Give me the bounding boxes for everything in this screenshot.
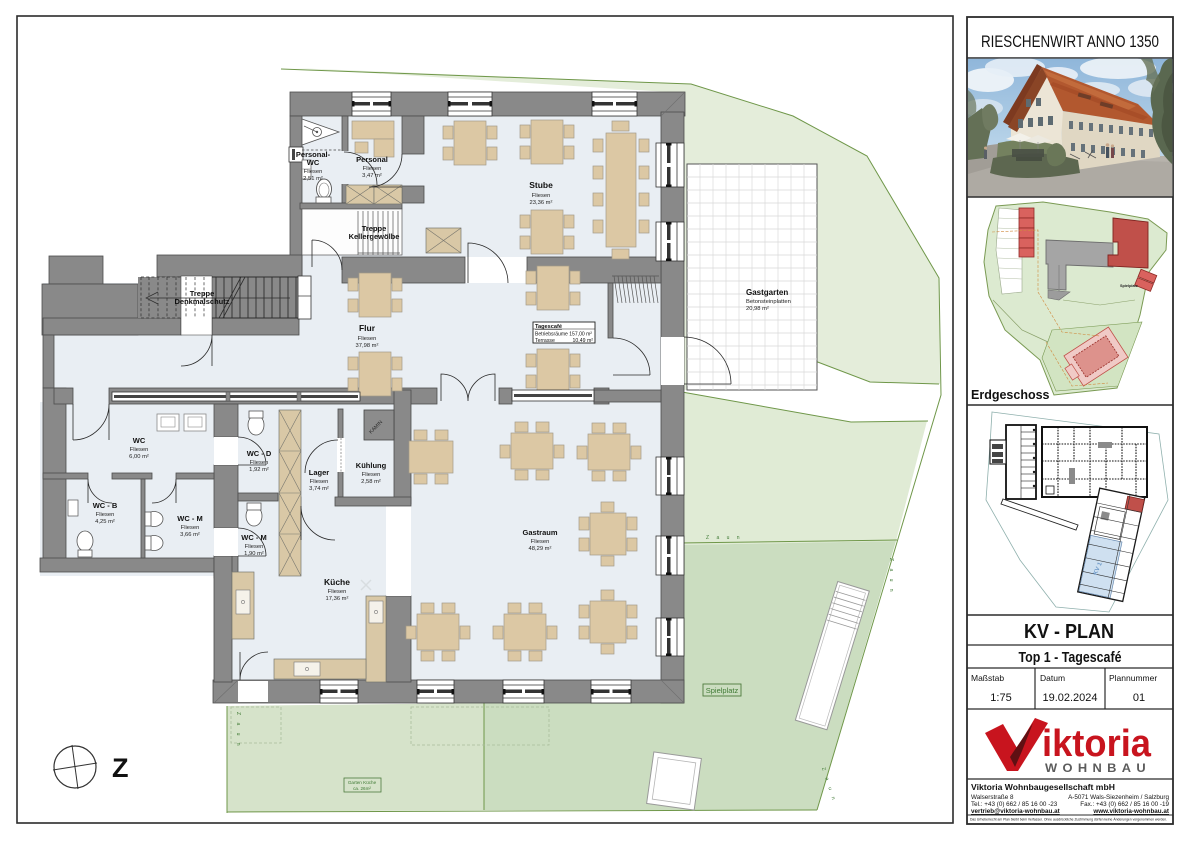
svg-text:Stube: Stube [529,180,553,190]
svg-text:Küche: Küche [324,577,350,587]
svg-text:Fliesen: Fliesen [304,169,323,175]
svg-text:Fliesen: Fliesen [130,447,149,453]
svg-text:Das Urheberrecht am Plan bleib: Das Urheberrecht am Plan bleibt beim Ver… [970,818,1167,822]
svg-text:Betonsteinplatten: Betonsteinplatten [746,299,791,305]
svg-text:Fliesen: Fliesen [362,472,381,478]
svg-text:1,90 m²: 1,90 m² [244,551,264,557]
svg-text:ca. 26m²: ca. 26m² [353,786,371,791]
svg-text:WOHNBAU: WOHNBAU [1045,761,1151,775]
svg-text:19.02.2024: 19.02.2024 [1042,692,1097,704]
svg-text:WC - M: WC - M [177,514,202,523]
svg-text:Gastraum: Gastraum [522,528,557,537]
svg-text:Walserstraße 8: Walserstraße 8 [971,794,1014,801]
svg-text:48,29 m²: 48,29 m² [529,546,552,552]
svg-text:23,36 m²: 23,36 m² [530,200,553,206]
svg-text:vertrieb@viktoria-wohnbau.at: vertrieb@viktoria-wohnbau.at [971,808,1061,815]
svg-text:Personal: Personal [356,155,388,164]
svg-text:Flur: Flur [359,323,376,333]
svg-text:Maßstab: Maßstab [971,673,1004,683]
svg-text:Z a u n: Z a u n [888,558,894,595]
svg-text:Fliesen: Fliesen [531,539,550,545]
svg-text:Gastgarten: Gastgarten [746,288,788,297]
svg-text:37,98 m²: 37,98 m² [356,343,379,349]
svg-text:Viktoria Wohnbaugesellschaft m: Viktoria Wohnbaugesellschaft mbH [971,782,1115,792]
svg-text:www.viktoria-wohnbau.at: www.viktoria-wohnbau.at [1092,808,1170,815]
svg-text:Fliesen: Fliesen [181,525,200,531]
svg-text:Fliesen: Fliesen [96,512,115,518]
svg-text:WC: WC [133,436,146,445]
svg-text:Kühlung: Kühlung [356,461,387,470]
svg-text:Fliesen: Fliesen [250,460,269,466]
svg-text:Spielplatz: Spielplatz [706,686,739,695]
svg-text:Fliesen: Fliesen [363,166,382,172]
svg-text:Plannummer: Plannummer [1109,673,1157,683]
svg-text:A-5071 Wals-Siezenheim / Salzb: A-5071 Wals-Siezenheim / Salzburg [1068,794,1169,801]
svg-text:Datum: Datum [1040,673,1065,683]
svg-text:17,36 m²: 17,36 m² [326,596,349,602]
svg-text:01: 01 [1133,692,1145,704]
svg-text:WC - M: WC - M [241,533,266,542]
svg-text:Top 1 - Tagescafé: Top 1 - Tagescafé [1019,650,1122,666]
svg-text:Erdgeschoss: Erdgeschoss [971,388,1050,402]
svg-text:Fliesen: Fliesen [358,336,377,342]
svg-text:Tel.: +43 (0) 662 / 85 16 00 -: Tel.: +43 (0) 662 / 85 16 00 -23 [971,801,1058,808]
svg-text:2,51 m²: 2,51 m² [303,176,323,182]
svg-text:Denkmalschutz: Denkmalschutz [174,297,229,306]
svg-text:WC - D: WC - D [247,449,272,458]
svg-text:Tagescafé: Tagescafé [535,324,562,330]
svg-text:iktoria: iktoria [1042,723,1152,765]
svg-text:10,49 m²: 10,49 m² [573,338,594,344]
svg-text:3,47 m²: 3,47 m² [362,173,382,179]
svg-text:WC - B: WC - B [93,501,118,510]
svg-text:1:75: 1:75 [990,692,1011,704]
svg-text:Garten Küche: Garten Küche [348,780,377,785]
svg-text:3,74 m²: 3,74 m² [309,486,329,492]
svg-text:Fliesen: Fliesen [310,479,329,485]
svg-text:Fliesen: Fliesen [328,589,347,595]
svg-text:2,58 m²: 2,58 m² [361,479,381,485]
svg-text:Lager: Lager [309,468,330,477]
svg-text:Kellergewölbe: Kellergewölbe [349,232,400,241]
svg-text:Z a u n: Z a u n [235,712,241,749]
svg-text:WC: WC [307,158,320,167]
svg-text:Fliesen: Fliesen [245,544,264,550]
svg-text:Betriebsräume 157,00 m²: Betriebsräume 157,00 m² [535,332,592,338]
svg-text:4,25 m²: 4,25 m² [95,519,115,525]
svg-text:3,66 m²: 3,66 m² [180,532,200,538]
svg-text:Spielplatz: Spielplatz [1120,284,1138,288]
svg-text:6,00 m²: 6,00 m² [129,454,149,460]
svg-text:Z a u n: Z a u n [706,535,743,541]
svg-text:Z: Z [112,753,129,783]
svg-text:KV - PLAN: KV - PLAN [1024,621,1114,643]
svg-text:Fax.: +43 (0) 662 / 85 16 00 -: Fax.: +43 (0) 662 / 85 16 00 -19 [1080,801,1169,808]
svg-text:1,92 m²: 1,92 m² [249,467,269,473]
svg-text:RIESCHENWIRT ANNO 1350: RIESCHENWIRT ANNO 1350 [981,32,1159,51]
svg-text:Fliesen: Fliesen [532,193,551,199]
svg-text:Terrasse: Terrasse [535,338,555,344]
svg-text:20,98 m²: 20,98 m² [746,306,769,312]
